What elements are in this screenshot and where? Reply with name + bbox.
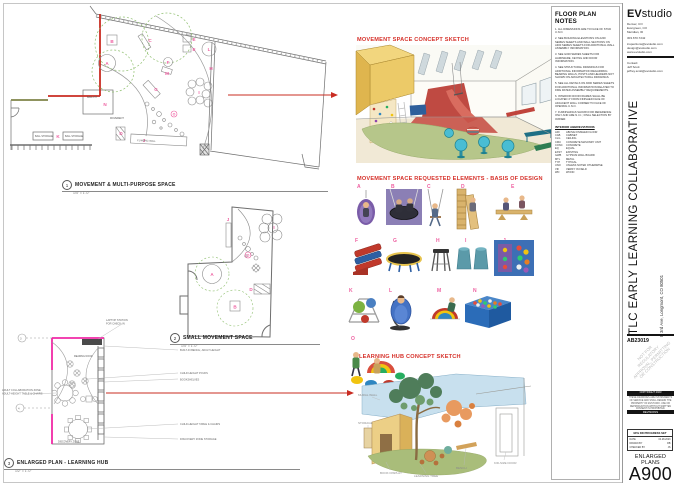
element-letter: I xyxy=(465,238,466,244)
element-n-ball-pit xyxy=(461,290,513,330)
svg-text:READING NOOK: READING NOOK xyxy=(74,355,93,358)
svg-text:F: F xyxy=(167,60,170,65)
element-e-balance-board xyxy=(492,192,536,222)
svg-text:CHILD-HEIGHT TABLE & CHAIRS: CHILD-HEIGHT TABLE & CHAIRS xyxy=(180,422,220,426)
svg-text:DISCOVERY ZONE: DISCOVERY ZONE xyxy=(58,441,80,444)
project-address-vertical: E 3rd Ave, Longmont, CO 80501 xyxy=(659,235,664,337)
note-item: 1. ALL DIMENSIONS ARE TO FACE OF STUD U.… xyxy=(555,28,616,35)
svg-text:ADULT-HEIGHT TABLE & CHAIRS: ADULT-HEIGHT TABLE & CHAIRS xyxy=(2,392,43,396)
svg-text:BOOKSHELVES: BOOKSHELVES xyxy=(180,378,200,382)
mural-band xyxy=(362,374,526,420)
revisions-label: REVISIONS xyxy=(627,410,674,414)
title-block: EVstudio Denver, CO Evergreen, CO Meridi… xyxy=(622,3,677,483)
svg-text:M: M xyxy=(165,71,169,76)
caption-plan3: 3 ENLARGED PLAN - LEARNING HUB xyxy=(4,458,300,470)
svg-text:L: L xyxy=(208,47,211,52)
svg-text:D: D xyxy=(119,131,123,136)
plan-movement-multipurpose: A B C D E E F G H I J K L M N O BALL PIT… xyxy=(4,4,344,196)
svg-text:N: N xyxy=(103,102,107,107)
svg-text:E: E xyxy=(192,37,195,42)
element-g-trampoline xyxy=(384,247,424,273)
svg-text:3: 3 xyxy=(20,337,22,340)
progress-set-box: 90% DD PROGRESS SET DATE04.28.2023 DRAWN… xyxy=(627,429,673,451)
copyright-bar: COPYRIGHT 2023 xyxy=(627,391,674,396)
svg-text:E: E xyxy=(192,47,195,52)
note-item: 3. SEE G000 SERIES SHEETS FOR HARDWARE, … xyxy=(555,53,616,63)
svg-text:G: G xyxy=(154,87,158,92)
svg-text:KID-SIZE DOOR: KID-SIZE DOOR xyxy=(494,461,517,465)
svg-text:A: A xyxy=(210,272,214,277)
abbreviations-title: INTERIOR ABBREVIATIONS xyxy=(555,125,616,129)
svg-text:CHILD HEIGHT POUFS: CHILD HEIGHT POUFS xyxy=(180,371,208,375)
annotation-leaders xyxy=(27,324,178,439)
heading-movement-sketch: MOVEMENT SPACE CONCEPT SKETCH xyxy=(357,37,469,43)
svg-text:K: K xyxy=(56,134,60,139)
svg-text:STORAGE: STORAGE xyxy=(358,421,373,425)
note-item: 5. SEE ALL DETAILS ON A500 SERIES SHEETS… xyxy=(555,82,616,92)
element-d-climbing-ladder xyxy=(453,187,481,231)
svg-text:BUILT-IN BENCH, ADULT HEIGHT: BUILT-IN BENCH, ADULT HEIGHT xyxy=(180,348,221,352)
detail-title: MOVEMENT & MULTI-PURPOSE SPACE xyxy=(75,182,176,188)
heading-elements: MOVEMENT SPACE REQUESTED ELEMENTS - BASI… xyxy=(357,176,543,182)
plan2-markers: A B D I J O xyxy=(210,217,274,310)
divider-bar xyxy=(627,56,674,58)
firm-links: inspections@evstudio.com design@evstudio… xyxy=(627,42,674,54)
svg-text:BALL PIT: BALL PIT xyxy=(87,96,98,99)
evstudio-logo: EVstudio xyxy=(627,8,674,20)
svg-text:BENCH: BENCH xyxy=(456,466,467,470)
svg-text:ADULT COLLABORATION ZONE: ADULT COLLABORATION ZONE xyxy=(2,388,41,392)
sketch-learning-hub: MURAL WALL STORAGE BOOK DISPLAY LEARNING… xyxy=(356,364,534,482)
plan3-annotations: LAPTOP STATION FOR CHECK-IN BUILT-IN BEN… xyxy=(2,318,221,444)
project-title-vertical: TLC EARLY LEARNING COLLABORATIVE xyxy=(628,129,640,335)
element-i-wobble-stools xyxy=(455,246,491,272)
drawing-sheet: A B C D E E F G H I J K L M N O BALL PIT… xyxy=(0,0,680,486)
detail-number: 1 xyxy=(62,180,72,190)
svg-text:LEARNING TREE: LEARNING TREE xyxy=(414,474,438,478)
element-j-sensory-panel xyxy=(494,240,534,276)
detail-title: ENLARGED PLAN - LEARNING HUB xyxy=(17,460,108,466)
element-l-cocoon-chair xyxy=(382,287,418,331)
svg-text:I: I xyxy=(198,90,199,95)
progress-set-title: 90% DD PROGRESS SET xyxy=(628,430,672,437)
svg-text:H: H xyxy=(209,66,213,71)
magenta-walls xyxy=(52,338,104,444)
element-h-stool xyxy=(428,244,454,274)
svg-text:LAPTOP STATION: LAPTOP STATION xyxy=(106,318,128,322)
svg-text:O: O xyxy=(247,254,250,258)
element-m-striped-dome xyxy=(428,292,462,326)
svg-text:BOOK DISPLAY: BOOK DISPLAY xyxy=(380,471,402,475)
checked-row: CHECKED BYJS xyxy=(628,445,672,449)
note-item: 4. SEE STRUCTURAL DRAWINGS FOR ADDITIONA… xyxy=(555,66,616,80)
svg-text:FOR CHECK-IN: FOR CHECK-IN xyxy=(106,322,125,326)
laptop-counter xyxy=(82,339,102,345)
shelf xyxy=(364,428,372,448)
svg-text:CLIMBING WALL: CLIMBING WALL xyxy=(137,139,156,143)
svg-text:D: D xyxy=(249,287,253,292)
firm-contact: Contact: Jeff Scott jeffrey.scott@evstud… xyxy=(627,61,674,73)
element-k-ball-rack xyxy=(345,291,381,327)
abbreviation-row: WDWOOD xyxy=(555,171,616,174)
notes-title: FLOOR PLAN NOTES xyxy=(555,11,616,25)
element-b-platform-swing xyxy=(386,189,422,225)
note-item: 6. INTERIOR DOOR FRAMES SHALL BE LOCATED… xyxy=(555,95,616,109)
svg-text:A: A xyxy=(105,61,109,66)
element-c-trapeze xyxy=(420,189,450,229)
element-a-pod-swing xyxy=(354,190,378,228)
element-letter: E xyxy=(511,184,514,190)
firm-offices: Denver, CO Evergreen, CO Meridian, ID xyxy=(627,22,674,34)
sheet-number: A900 xyxy=(627,464,674,485)
svg-text:DISCOVERY ZONE STORAGE: DISCOVERY ZONE STORAGE xyxy=(180,437,217,441)
svg-text:MURAL WALL: MURAL WALL xyxy=(358,393,378,397)
svg-text:MOVEMENT: MOVEMENT xyxy=(110,117,124,120)
svg-text:J: J xyxy=(227,217,230,222)
svg-text:O: O xyxy=(173,113,176,117)
svg-text:4: 4 xyxy=(18,407,20,410)
red-leader-arrow-1 xyxy=(228,92,338,98)
note-item: 7. FURNISHINGS SHOWN FOR REFERENCE ONLY … xyxy=(555,111,616,121)
element-letter: G xyxy=(393,238,397,244)
firm-phone: 303.670.7242 xyxy=(627,36,674,40)
red-walls xyxy=(48,14,100,96)
svg-text:B: B xyxy=(110,39,114,44)
note-item: 2. SEE BUILDING ELEVATIONS ON A200 SERIE… xyxy=(555,37,616,51)
detail-number: 3 xyxy=(4,458,14,468)
caption-plan1: 1 MOVEMENT & MULTI-PURPOSE SPACE xyxy=(62,180,328,192)
floor-plan-notes-panel: FLOOR PLAN NOTES 1. ALL DIMENSIONS ARE T… xyxy=(551,6,620,480)
svg-text:B: B xyxy=(233,305,237,310)
svg-text:BALL STORAGE: BALL STORAGE xyxy=(65,135,83,138)
svg-text:C: C xyxy=(148,38,152,43)
svg-text:I: I xyxy=(273,225,274,230)
red-leader-arrow-2 xyxy=(106,390,354,396)
svg-text:BALL STORAGE: BALL STORAGE xyxy=(35,135,53,138)
element-f-crash-mats xyxy=(350,242,384,276)
plan1-markers: A B C D E E F G H I J K L M N O xyxy=(56,37,213,143)
detail-scale: 1/4" = 1'-0" xyxy=(73,191,90,195)
pouf xyxy=(467,127,480,135)
blue-box xyxy=(410,104,427,115)
detail-scale: 1/2" = 1'-0" xyxy=(15,469,32,473)
sketch-movement-space xyxy=(356,45,561,163)
plan-learning-hub: LAPTOP STATION FOR CHECK-IN BUILT-IN BEN… xyxy=(2,312,358,462)
